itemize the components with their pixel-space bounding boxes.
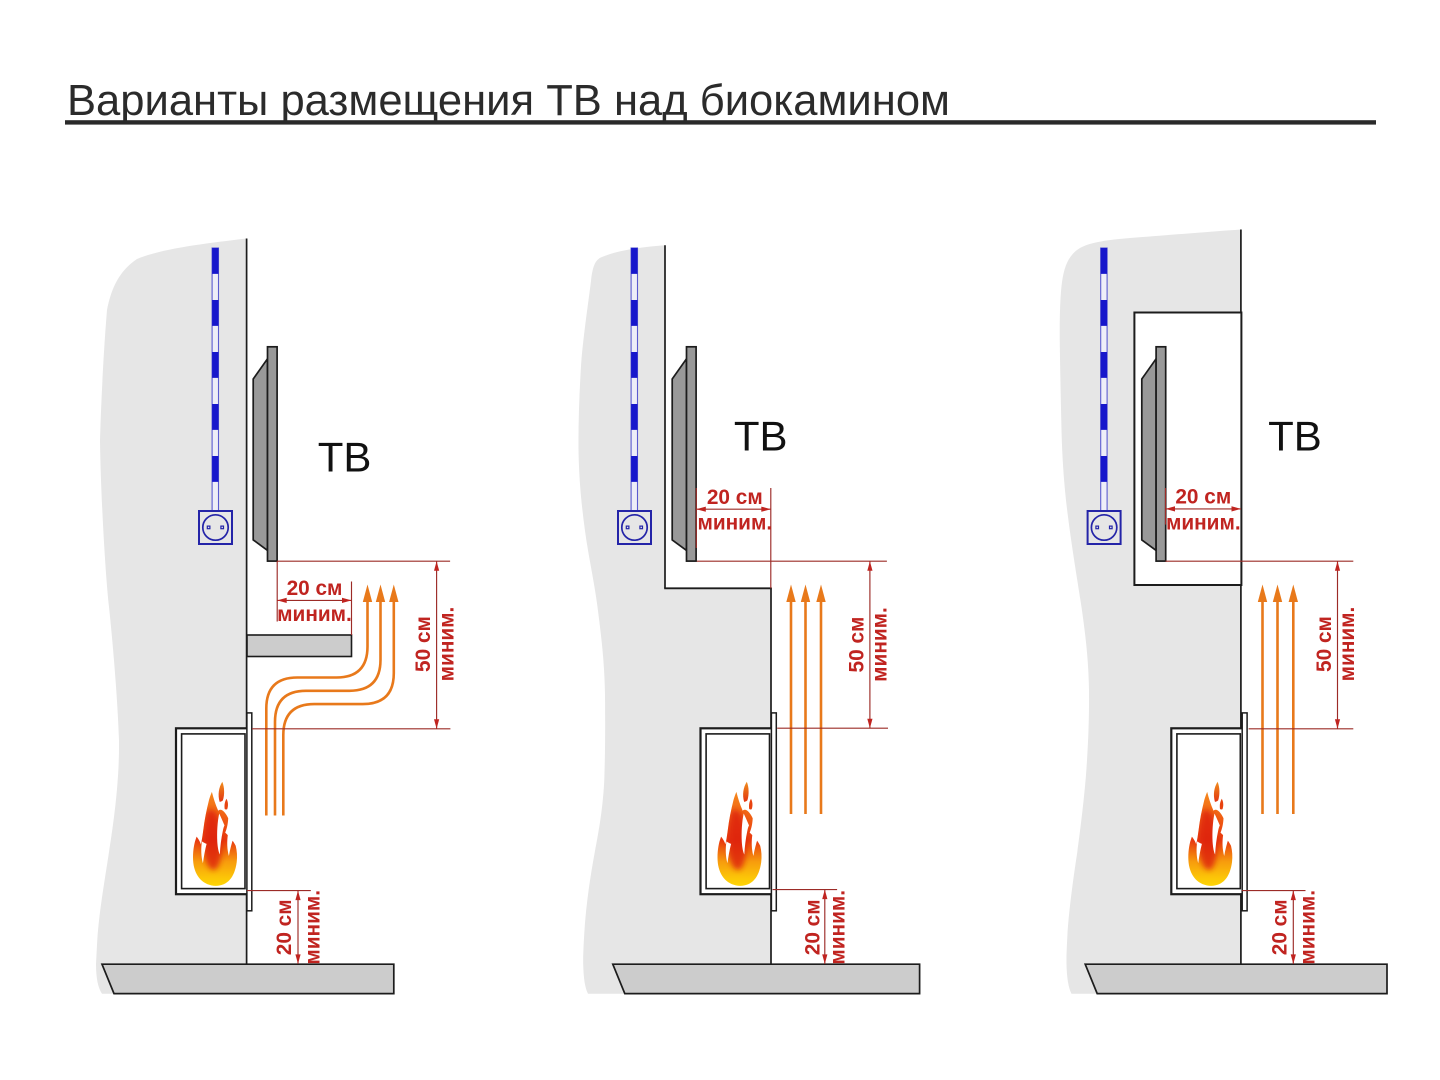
svg-text:миним.: миним. — [1297, 890, 1320, 965]
svg-text:миним.: миним. — [302, 890, 325, 965]
svg-text:миним.: миним. — [869, 607, 892, 682]
svg-text:миним.: миним. — [1166, 511, 1241, 534]
svg-text:20 см: 20 см — [707, 486, 763, 509]
svg-text:миним.: миним. — [826, 890, 849, 965]
svg-text:миним.: миним. — [1336, 607, 1359, 682]
svg-text:20 см: 20 см — [1175, 486, 1231, 509]
svg-text:50 см: 50 см — [845, 617, 868, 673]
svg-text:миним.: миним. — [697, 512, 772, 535]
svg-text:ТВ: ТВ — [734, 413, 788, 460]
svg-text:миним.: миним. — [277, 603, 352, 626]
svg-text:20 см: 20 см — [273, 899, 296, 955]
svg-text:ТВ: ТВ — [1268, 413, 1322, 460]
svg-text:миним.: миним. — [435, 607, 458, 682]
svg-text:20 см: 20 см — [801, 899, 824, 955]
svg-text:20 см: 20 см — [287, 577, 343, 600]
svg-text:20 см: 20 см — [1268, 899, 1291, 955]
svg-text:Варианты размещения ТВ над био: Варианты размещения ТВ над биокамином — [67, 76, 950, 125]
svg-text:ТВ: ТВ — [318, 433, 372, 480]
svg-text:50 см: 50 см — [1313, 616, 1336, 672]
svg-text:50 см: 50 см — [412, 616, 435, 672]
